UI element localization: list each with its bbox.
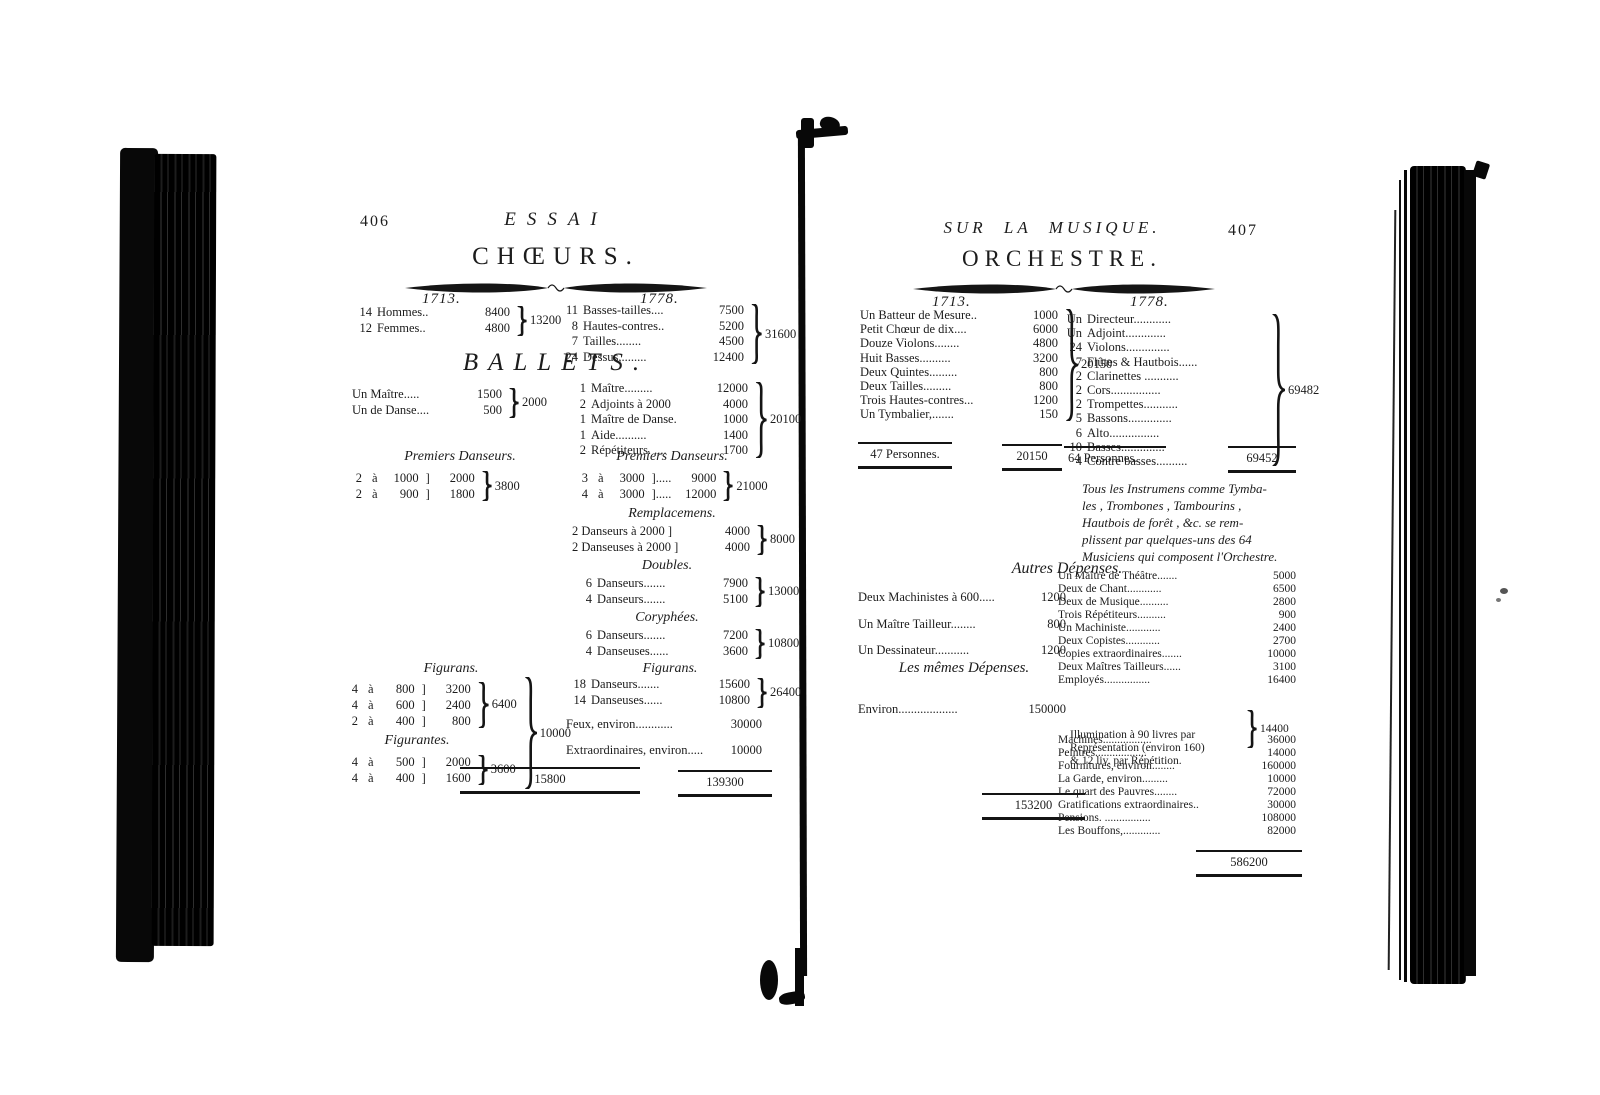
group-total: 31600 xyxy=(765,327,796,342)
personnes-1778-label: 64 Personnes. xyxy=(1064,446,1166,470)
scan-artifact-speck-2 xyxy=(1496,598,1501,602)
scan-artifact-gutter-bottom-blob xyxy=(760,960,778,1000)
table-row: La Garde, environ.........10000 xyxy=(1058,773,1296,786)
coryphees-group: 6Danseurs.......72004Danseuses......3600… xyxy=(572,628,799,659)
table-row: Un Dessinateur...........1200 xyxy=(858,643,1066,659)
feux-row: Feux, environ............ 30000 xyxy=(566,717,762,733)
orchestre-title: ORCHESTRE. xyxy=(912,246,1212,272)
total-1778-ballets: 139300 xyxy=(678,770,772,797)
table-row: 8Hautes-contres..5200 xyxy=(558,319,744,335)
year-1778-right: 1778. xyxy=(1130,294,1169,311)
note-line: Hautbois de forêt , &c. se rem- xyxy=(1072,514,1296,531)
scan-artifact-gutter-bottom-line xyxy=(795,948,804,1006)
table-row: 7Tailles........4500 xyxy=(558,334,744,350)
scan-artifact-speck-1 xyxy=(1500,588,1508,594)
premiers-danseurs-1778-group: 3à3000].....90004à3000].....12000 21000 xyxy=(572,470,768,502)
brace-icon xyxy=(750,304,762,364)
total-1778-autres: 586200 xyxy=(1196,850,1302,877)
group-total: 3800 xyxy=(495,479,520,494)
table-row: Trois Répétiteurs..........900 xyxy=(1058,609,1296,622)
page-number-left: 406 xyxy=(360,213,390,231)
table-row: 4Danseurs.......5100 xyxy=(572,592,748,608)
extraordinaires-row: Extraordinaires, environ..... 10000 xyxy=(566,743,762,759)
figurans-1778-group: 18Danseurs.......1560014Danseuses......1… xyxy=(566,677,801,708)
note-line: les , Trombones , Tambourins , xyxy=(1072,497,1296,514)
ballets-1713-group: Un Maître.....1500Un de Danse....500 200… xyxy=(352,387,547,418)
brace-icon xyxy=(477,682,489,728)
choeurs-title: CHŒURS. xyxy=(406,243,706,271)
figurans-1778-heading: Figurans. xyxy=(590,661,750,677)
table-row: 2 Danseuses à 2000 ]4000 xyxy=(572,540,750,556)
group-total: 13000 xyxy=(768,584,799,599)
brace-icon xyxy=(722,471,733,501)
brace-icon xyxy=(481,471,492,501)
table-row: 14Danseuses......10800 xyxy=(566,693,750,709)
table-row: 4à500]2000 xyxy=(342,754,471,770)
total-1713-ballets: 15800 xyxy=(460,767,640,794)
personnes-1778-amount: 69452 xyxy=(1228,446,1296,473)
table-row: 4à400]1600 xyxy=(342,770,471,786)
brace-icon xyxy=(754,382,767,458)
ballets-1778-group: 1Maître.........120002Adjoints à 2000400… xyxy=(566,381,801,459)
table-row: 6Danseurs.......7200 xyxy=(572,628,748,644)
table-row: Deux Tailles.........800 xyxy=(860,379,1058,393)
table-row: Un Maître.....1500 xyxy=(352,387,502,403)
premiers-danseurs-1713-group: 2à1000]20002à900]1800 3800 xyxy=(346,470,520,502)
table-row: 4à600]2400 xyxy=(342,697,471,713)
environ-row: Environ................... 150000 xyxy=(858,702,1066,718)
brace-icon xyxy=(756,525,767,555)
table-row: Un Batteur de Mesure..1000 xyxy=(860,308,1058,322)
table-row: 7Flûtes & Hautbois...... xyxy=(1062,355,1264,369)
figurans-1713-heading: Figurans. xyxy=(376,661,526,677)
brace-icon xyxy=(754,577,765,607)
table-row: Deux Machinistes à 600.....1200 xyxy=(858,590,1066,606)
table-row: 2Trompettes........... xyxy=(1062,397,1264,411)
table-row: Pensions. ................108000 xyxy=(1058,812,1296,825)
table-row: 2Cors................ xyxy=(1062,383,1264,397)
left-page: 406 ESSAI CHŒURS. 1713. 1778. 14Hommes..… xyxy=(340,205,772,845)
scan-artifact-right-thin-line-1 xyxy=(1388,210,1397,970)
table-row: 12Femmes..4800 xyxy=(352,321,510,337)
premiers-danseurs-heading-1778: Premiers Danseurs. xyxy=(592,449,752,465)
group-total: 6400 xyxy=(492,697,517,712)
choeurs-1713-group: 14Hommes..840012Femmes..4800 13200 xyxy=(352,305,561,336)
table-row: Machines.................36000 xyxy=(1058,734,1296,747)
table-row: 1Aide..........1400 xyxy=(566,428,748,444)
table-row: 2Clarinettes ........... xyxy=(1062,369,1264,383)
table-row: Deux de Musique..........2800 xyxy=(1058,596,1296,609)
table-row: 4à800]3200 xyxy=(342,681,471,697)
group-total: 21000 xyxy=(736,479,767,494)
table-row: Un Tymbalier,.......150 xyxy=(860,407,1058,421)
note-line: Tous les Instrumens comme Tymba- xyxy=(1072,480,1296,497)
table-row: Deux Copistes............2700 xyxy=(1058,635,1296,648)
autres-1713-rows: Deux Machinistes à 600.....1200Un Maître… xyxy=(858,590,1066,670)
table-row: 2à1000]2000 xyxy=(346,470,475,486)
running-title-left: ESSAI xyxy=(446,209,666,231)
ballets-title: BALLETS. xyxy=(406,349,706,377)
group-total: 69482 xyxy=(1288,383,1319,398)
instruments-note: Tous les Instrumens comme Tymba-les , Tr… xyxy=(1072,480,1296,565)
table-row: 2à400]800 xyxy=(342,713,471,729)
table-row: Gratifications extraordinaires..30000 xyxy=(1058,799,1296,812)
memes-depenses-title: Les mêmes Dépenses. xyxy=(874,660,1054,677)
figurantes-heading: Figurantes. xyxy=(342,733,492,749)
brace-icon xyxy=(756,678,767,708)
personnes-1713-label: 47 Personnes. xyxy=(858,442,952,469)
table-row: 4à3000].....12000 xyxy=(572,486,716,502)
table-row: Fournitures, environ........160000 xyxy=(1058,760,1296,773)
autres-1778-rows-before: Un Maître de Théâtre.......5000Deux de C… xyxy=(1058,570,1296,687)
orchestre-1778-group: UnDirecteur............UnAdjoint........… xyxy=(1062,312,1319,468)
personnes-1713-amount: 20150 xyxy=(1002,444,1062,471)
table-row: UnDirecteur............ xyxy=(1062,312,1264,326)
table-row: Trois Hautes-contres...1200 xyxy=(860,393,1058,407)
right-page: SUR LA MUSIQUE. 407 ORCHESTRE. 1713. 177… xyxy=(852,210,1304,890)
group-total: 20100 xyxy=(770,412,801,427)
scan-artifact-right-band xyxy=(1410,166,1466,984)
table-row: Un Maître Tailleur........800 xyxy=(858,617,1066,633)
coryphees-heading: Coryphées. xyxy=(592,610,742,626)
autres-1778-rows-after: Machines.................36000Peintres..… xyxy=(1058,734,1296,838)
table-row: Un de Danse....500 xyxy=(352,403,502,419)
brace-icon xyxy=(1270,314,1285,466)
running-title-right: SUR LA MUSIQUE. xyxy=(882,218,1222,238)
table-row: Les Bouffons,.............82000 xyxy=(1058,825,1296,838)
figurans-1713-subgroup: 4à800]32004à600]24002à400]800 6400 xyxy=(342,681,517,729)
table-row: Un Maître de Théâtre.......5000 xyxy=(1058,570,1296,583)
group-total: 13200 xyxy=(530,313,561,328)
table-row: 3à3000].....9000 xyxy=(572,470,716,486)
scan-artifact-gutter-top-blob-stem xyxy=(801,118,814,148)
table-row: Un Machiniste............2400 xyxy=(1058,622,1296,635)
scan-artifact-left-band-outer xyxy=(152,154,217,946)
scan-artifact-right-band-edge xyxy=(1464,170,1476,976)
table-row: 2à900]1800 xyxy=(346,486,475,502)
table-row: 18Danseurs.......15600 xyxy=(566,677,750,693)
brace-icon xyxy=(508,388,519,418)
table-row: 6Alto................ xyxy=(1062,426,1264,440)
table-row: 2 Danseurs à 2000 ]4000 xyxy=(572,524,750,540)
table-row: Petit Chœur de dix....6000 xyxy=(860,322,1058,336)
table-row: Employés................16400 xyxy=(1058,674,1296,687)
table-row: 14Hommes..8400 xyxy=(352,305,510,321)
table-row: Deux Quintes.........800 xyxy=(860,365,1058,379)
doubles-group: 6Danseurs.......79004Danseurs.......5100… xyxy=(572,576,799,607)
table-row: 24Violons.............. xyxy=(1062,340,1264,354)
brace-icon xyxy=(516,306,527,336)
premiers-danseurs-heading-1713: Premiers Danseurs. xyxy=(380,449,540,465)
group-total: 10800 xyxy=(768,636,799,651)
table-row: 4Danseuses......3600 xyxy=(572,644,748,660)
group-total: 2000 xyxy=(522,395,547,410)
table-row: 1Maître.........12000 xyxy=(566,381,748,397)
table-row: Deux de Chant............6500 xyxy=(1058,583,1296,596)
table-row: 2Adjoints à 20004000 xyxy=(566,397,748,413)
brace-icon xyxy=(754,629,765,659)
table-row: 6Danseurs.......7900 xyxy=(572,576,748,592)
remplacemens-heading: Remplacemens. xyxy=(592,506,752,522)
page-number-right: 407 xyxy=(1228,222,1258,240)
scan-artifact-right-thin-line-2 xyxy=(1399,180,1401,980)
table-row: Le quart des Pauvres........72000 xyxy=(1058,786,1296,799)
table-row: UnAdjoint............. xyxy=(1062,326,1264,340)
note-line: plissent par quelques-uns des 64 xyxy=(1072,531,1296,548)
group-total: 8000 xyxy=(770,532,795,547)
scan-artifact-gutter-line xyxy=(798,138,807,976)
table-row: 5Bassons.............. xyxy=(1062,411,1264,425)
group-total: 26400 xyxy=(770,685,801,700)
doubles-heading: Doubles. xyxy=(592,558,742,574)
table-row: 1Maître de Danse.1000 xyxy=(566,412,748,428)
table-row: Douze Violons........4800 xyxy=(860,336,1058,350)
remplacemens-group: 2 Danseurs à 2000 ]40002 Danseuses à 200… xyxy=(572,524,795,555)
table-row: Peintres..................14000 xyxy=(1058,747,1296,760)
table-row: 11Basses-tailles....7500 xyxy=(558,303,744,319)
scan-artifact-right-thin-line-3 xyxy=(1404,170,1407,982)
table-row: Deux Maîtres Tailleurs......3100 xyxy=(1058,661,1296,674)
table-row: Huit Basses..........3200 xyxy=(860,351,1058,365)
table-row: Copies extraordinaires.......10000 xyxy=(1058,648,1296,661)
